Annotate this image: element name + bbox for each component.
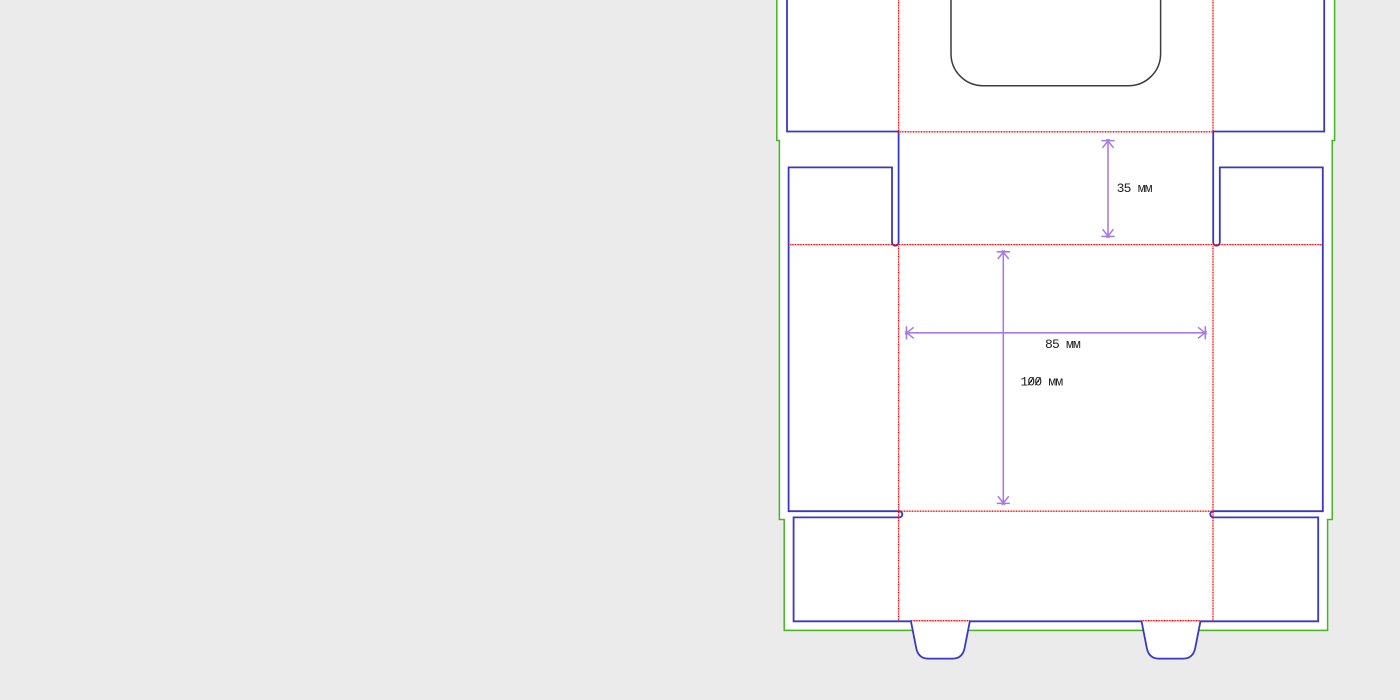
svg-text:100 мм: 100 мм xyxy=(1020,375,1063,390)
svg-text:35 мм: 35 мм xyxy=(1117,181,1153,196)
svg-text:85 мм: 85 мм xyxy=(1045,337,1081,352)
